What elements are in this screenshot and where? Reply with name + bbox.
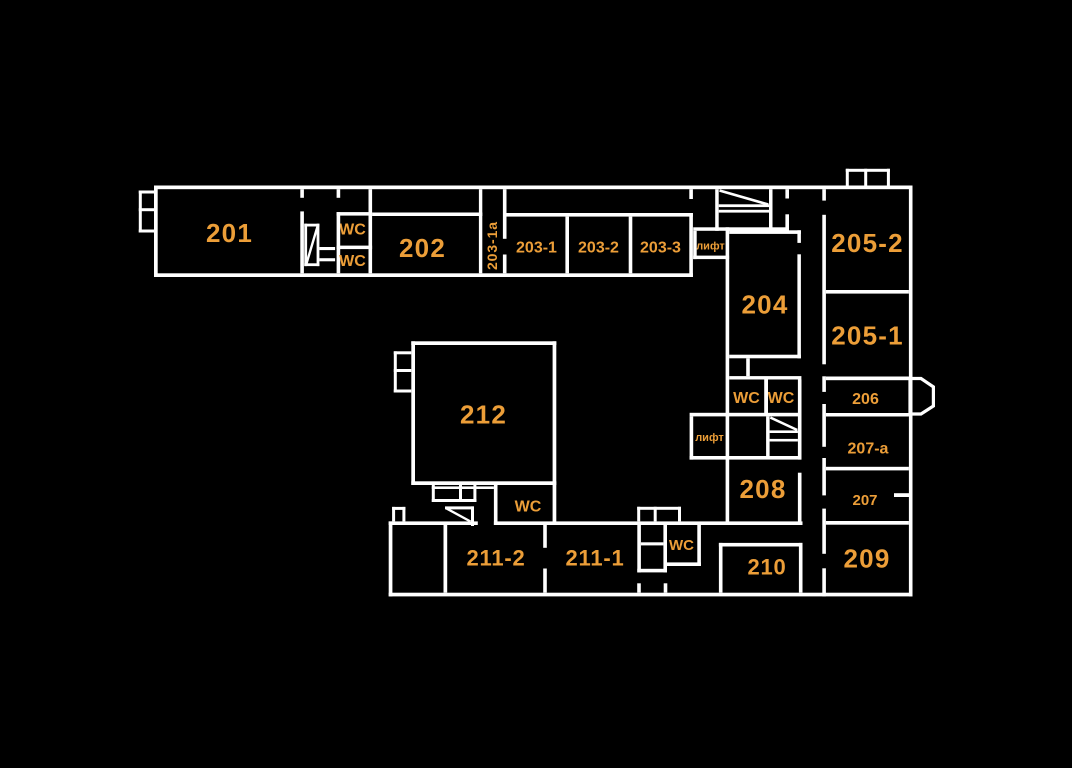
svg-text:206: 206: [852, 391, 879, 408]
svg-text:202: 202: [399, 233, 446, 263]
svg-text:209: 209: [844, 543, 891, 573]
svg-text:WC: WC: [515, 499, 542, 516]
svg-text:203-2: 203-2: [578, 239, 619, 256]
svg-text:203-1a: 203-1a: [484, 221, 500, 270]
svg-text:211-2: 211-2: [466, 545, 525, 570]
svg-text:207: 207: [852, 492, 877, 509]
svg-text:лифт: лифт: [696, 241, 725, 253]
svg-text:205-1: 205-1: [831, 320, 904, 350]
svg-text:210: 210: [747, 554, 786, 579]
svg-text:212: 212: [460, 399, 507, 429]
svg-text:207-a: 207-a: [848, 440, 889, 457]
svg-text:WC: WC: [339, 253, 366, 270]
svg-text:лифт: лифт: [695, 432, 724, 444]
svg-text:WC: WC: [669, 537, 694, 554]
svg-text:203-1: 203-1: [516, 239, 557, 256]
svg-text:204: 204: [742, 289, 789, 319]
svg-text:211-1: 211-1: [565, 545, 624, 570]
svg-text:203-3: 203-3: [640, 239, 681, 256]
svg-text:205-2: 205-2: [831, 228, 904, 258]
svg-text:WC: WC: [768, 390, 795, 407]
svg-text:WC: WC: [339, 221, 366, 238]
svg-text:208: 208: [740, 474, 787, 504]
svg-text:WC: WC: [733, 390, 760, 407]
svg-text:201: 201: [206, 218, 253, 248]
